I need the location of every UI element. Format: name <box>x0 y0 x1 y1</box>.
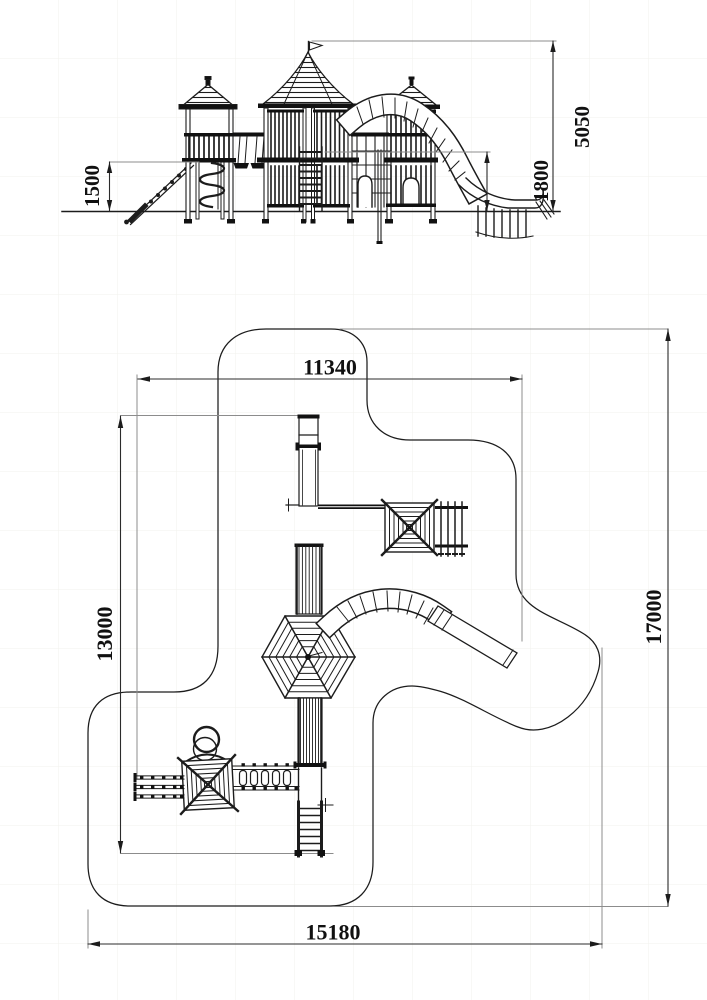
dimension-label-17000: 17000 <box>641 590 666 645</box>
dimension-label-15180: 15180 <box>306 920 361 945</box>
ne-tower-roof <box>382 500 437 555</box>
drawing-sheet: 1500 1800 5050 <box>0 0 707 1000</box>
dimension-label-11340: 11340 <box>303 355 357 380</box>
dimension-label-5050: 5050 <box>570 106 594 148</box>
upper-plank-bridge <box>295 544 324 615</box>
lower-plank-bridge <box>294 698 327 769</box>
arch-window <box>403 178 419 206</box>
playground-technical-drawing: 1500 1800 5050 <box>0 0 707 1000</box>
dimension-label-1800: 1800 <box>529 160 553 202</box>
background-grid <box>0 0 707 1000</box>
ne-beam <box>318 505 385 510</box>
dimension-label-13000: 13000 <box>92 607 117 662</box>
dimension-label-1500: 1500 <box>80 165 104 207</box>
crawl-arch <box>358 176 372 207</box>
